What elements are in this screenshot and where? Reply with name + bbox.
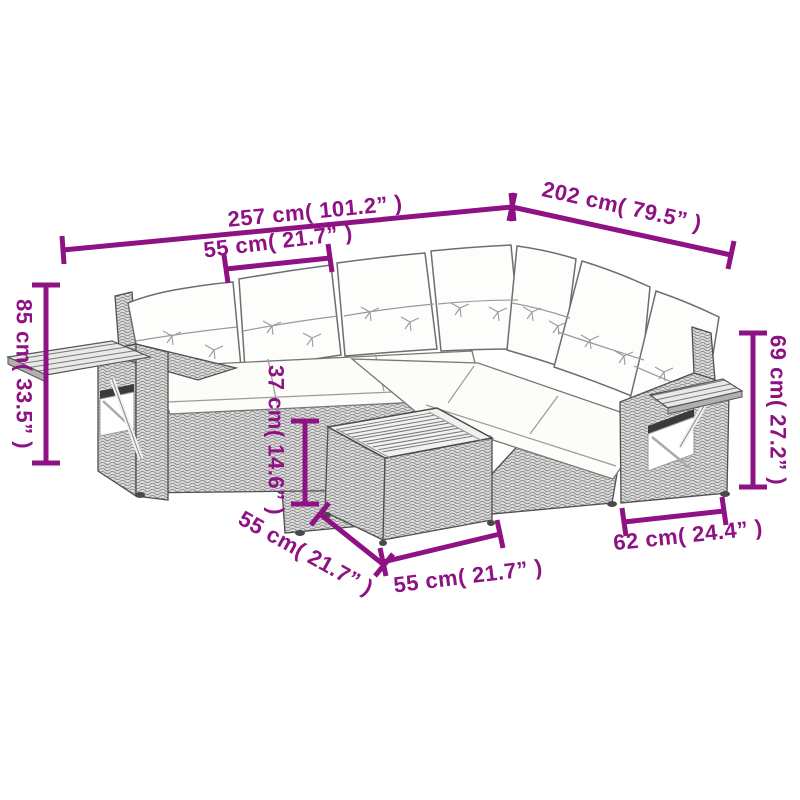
dimension-table-height-label: 37 cm( 14.6” ) <box>264 365 289 515</box>
sofa-set-diagram: 257 cm( 101.2” ) 202 cm( 79.5” ) 55 cm( … <box>0 0 800 800</box>
back-cushion <box>431 245 521 351</box>
dimension-total-depth-label: 202 cm( 79.5” ) <box>540 176 704 235</box>
dimension-table-front-label: 55 cm( 21.7” ) <box>392 554 544 597</box>
dimension-armrest-height: 69 cm( 27.2” ) <box>739 333 791 487</box>
dimension-armrest-module-depth: 62 cm( 24.4” ) <box>612 497 764 555</box>
right-back-post <box>692 327 715 380</box>
dimension-back-height-label: 85 cm( 33.5” ) <box>12 299 37 449</box>
dimension-line <box>739 333 767 487</box>
left-armrest-front-face <box>136 344 168 500</box>
product-dimension-diagram: 257 cm( 101.2” ) 202 cm( 79.5” ) 55 cm( … <box>0 0 800 800</box>
back-cushion <box>337 253 437 356</box>
sofa-illustration <box>8 245 742 546</box>
dimension-armrest-height-label: 69 cm( 27.2” ) <box>766 335 791 485</box>
